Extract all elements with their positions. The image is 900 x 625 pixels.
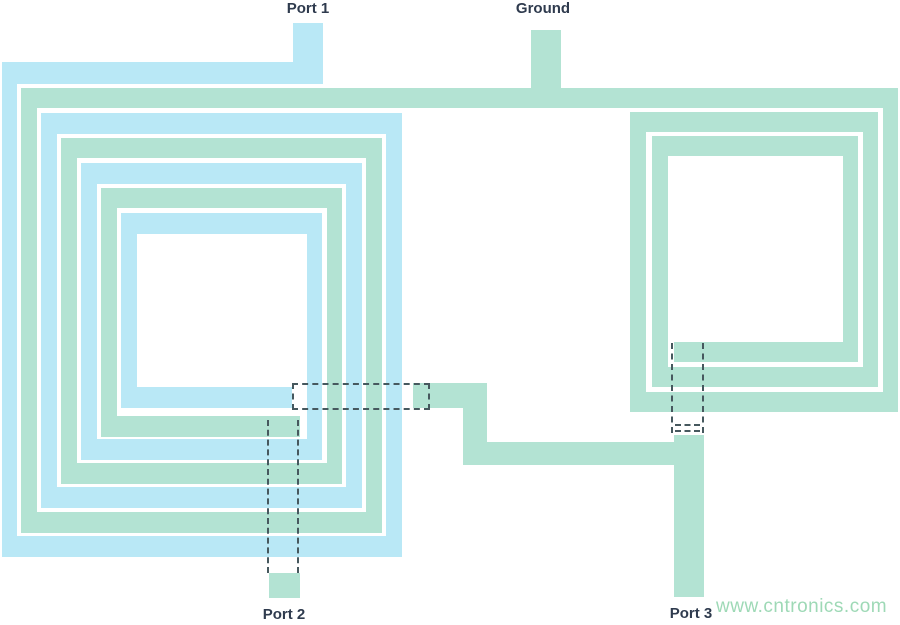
label-ground: Ground bbox=[516, 0, 570, 17]
underpass-center-box bbox=[292, 383, 430, 410]
underpass-port3-tick-1 bbox=[675, 424, 700, 426]
underpass-dashed-layer bbox=[0, 0, 900, 625]
label-port2: Port 2 bbox=[263, 606, 306, 623]
underpass-port3-line-right bbox=[702, 343, 704, 433]
underpass-port2-line-right bbox=[297, 420, 299, 573]
underpass-port3-line-left bbox=[671, 343, 673, 433]
underpass-port3-tick-2 bbox=[675, 430, 700, 432]
spiral-inductor-layout-canvas: Port 1 Ground Port 2 Port 3 www.cntronic… bbox=[0, 0, 900, 625]
label-port1: Port 1 bbox=[287, 0, 330, 17]
watermark-text: www.cntronics.com bbox=[716, 596, 887, 618]
underpass-port2-line-left bbox=[267, 420, 269, 573]
label-port3: Port 3 bbox=[670, 605, 713, 622]
